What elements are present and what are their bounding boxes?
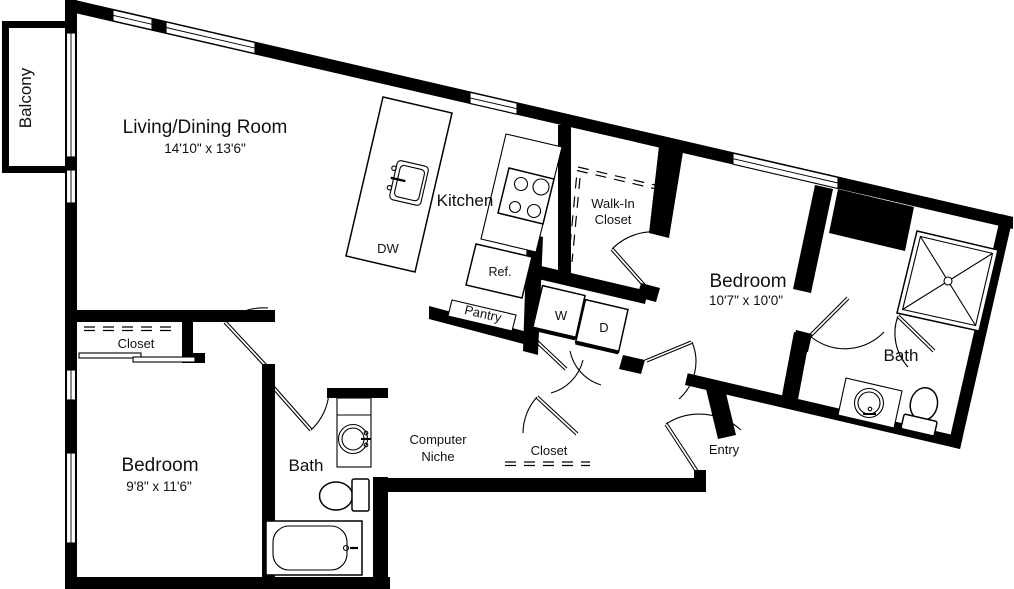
dishwasher-label: DW bbox=[377, 241, 399, 256]
bedroom-right-dims: 10'7" x 10'0" bbox=[709, 293, 783, 308]
living-dining-label: Living/Dining Room bbox=[123, 117, 288, 138]
bath-right-label: Bath bbox=[884, 346, 919, 365]
balcony-label: Balcony bbox=[16, 67, 35, 128]
living-dining-dims: 14'10" x 13'6" bbox=[164, 141, 246, 156]
floorplan-svg: Balcony Living/Dining Room 14'10" x 13'6… bbox=[0, 0, 1014, 589]
computer-niche-label-2: Niche bbox=[421, 449, 454, 464]
shower-icon bbox=[897, 231, 998, 331]
bedroom-left-label: Bedroom bbox=[121, 455, 198, 476]
entry-label: Entry bbox=[709, 442, 740, 457]
hall-closet-label: Closet bbox=[531, 443, 568, 458]
doors bbox=[224, 232, 935, 477]
sliding-door-panel bbox=[79, 353, 141, 358]
walk-in-closet-label-2: Closet bbox=[595, 212, 632, 227]
computer-niche-label-1: Computer bbox=[409, 432, 467, 447]
bedroom-closet-label: Closet bbox=[118, 336, 155, 351]
sliding-door-panel bbox=[133, 357, 195, 362]
bath-left-toilet-icon bbox=[320, 479, 370, 511]
refrigerator-label: Ref. bbox=[489, 265, 512, 279]
bedroom-left-dims: 9'8" x 11'6" bbox=[126, 479, 192, 494]
washer-label: W bbox=[555, 308, 568, 323]
kitchen-label: Kitchen bbox=[437, 191, 494, 210]
dryer-label: D bbox=[599, 320, 608, 335]
bath-left-label: Bath bbox=[289, 456, 324, 475]
bathtub-icon bbox=[266, 521, 362, 575]
kitchen-island bbox=[346, 97, 452, 272]
bath-left-sink-icon bbox=[337, 398, 371, 467]
bedroom-right-label: Bedroom bbox=[709, 271, 786, 292]
floorplan-canvas: Balcony Living/Dining Room 14'10" x 13'6… bbox=[0, 0, 1014, 589]
bath-right-toilet-icon bbox=[901, 384, 944, 436]
walk-in-closet-label-1: Walk-In bbox=[591, 196, 635, 211]
